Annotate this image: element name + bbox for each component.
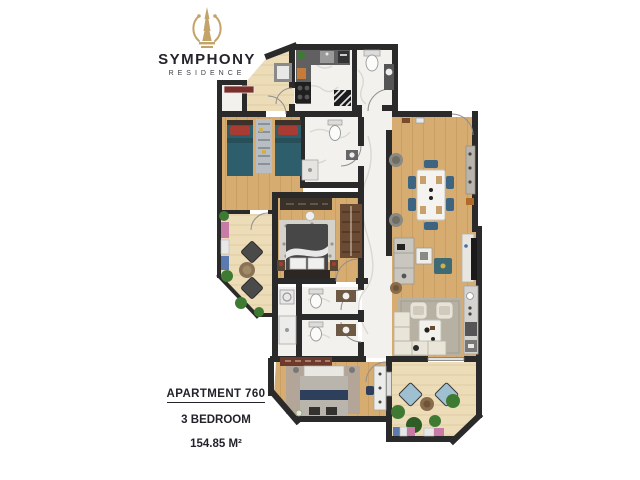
bathroom-top-vanity	[384, 64, 394, 90]
shower-tray	[279, 316, 296, 344]
dining-chair	[446, 198, 454, 211]
ceiling-lamp	[306, 212, 315, 221]
twin-bed-1	[227, 120, 253, 176]
kitchenette-counter	[464, 286, 478, 354]
bedroom3-window	[387, 372, 392, 396]
stove	[295, 82, 311, 103]
flower-box	[221, 222, 229, 238]
floor-lamp	[413, 345, 419, 351]
washing-machine	[280, 290, 294, 304]
bed3	[300, 366, 348, 416]
kitchen-plant	[297, 51, 305, 59]
cutting-board	[297, 68, 306, 79]
flower-box	[393, 427, 400, 436]
nightstand	[293, 367, 299, 373]
plant	[219, 211, 229, 221]
plant	[221, 270, 233, 282]
flower-box	[407, 427, 415, 436]
tv-shelf	[394, 238, 414, 284]
laundry	[279, 290, 296, 344]
toilet	[309, 322, 323, 341]
balcony-slider-window	[428, 358, 464, 361]
dining-chair	[424, 222, 438, 230]
wall-art	[466, 198, 474, 205]
plant	[235, 297, 247, 309]
console	[416, 118, 424, 123]
vanity	[336, 290, 356, 302]
flower-box	[400, 427, 407, 436]
shoe-cabinet	[402, 118, 410, 123]
microwave	[338, 51, 349, 63]
vase	[296, 410, 302, 416]
flower-box	[221, 256, 229, 270]
master-closet	[340, 204, 362, 258]
toilet	[328, 120, 342, 141]
teal-pouf	[434, 258, 452, 274]
tv-wall-unit	[462, 234, 477, 282]
dining-chair	[408, 176, 416, 189]
twin-bedroom-rug	[256, 119, 272, 173]
dresser	[280, 357, 332, 366]
stool	[366, 386, 374, 395]
armchair-2	[436, 302, 453, 319]
plant	[254, 307, 264, 317]
plant	[429, 415, 441, 427]
plant	[391, 405, 405, 419]
kitchen-mat	[334, 90, 351, 106]
dining-chair	[424, 160, 438, 168]
flower-box	[221, 240, 229, 254]
floor-plan	[0, 0, 640, 480]
page: SYMPHONY RESIDENCE APARTMENT 760 3 BEDRO…	[0, 0, 640, 480]
twin-bed-2	[275, 120, 301, 176]
flower-box	[424, 428, 434, 436]
vanity	[336, 324, 356, 336]
armchair-1	[410, 302, 427, 319]
flower-box	[434, 428, 444, 436]
floor-art	[416, 248, 432, 264]
sideboard	[466, 146, 475, 194]
bench	[224, 86, 254, 93]
dining-chair	[446, 176, 454, 189]
master-bed	[284, 224, 330, 278]
nightstand-right	[330, 260, 338, 271]
plant	[446, 394, 460, 408]
nightstand	[349, 367, 355, 373]
nightstand-left	[277, 260, 285, 271]
toilet	[309, 289, 323, 308]
tv	[471, 238, 477, 280]
dining-chair	[408, 198, 416, 211]
